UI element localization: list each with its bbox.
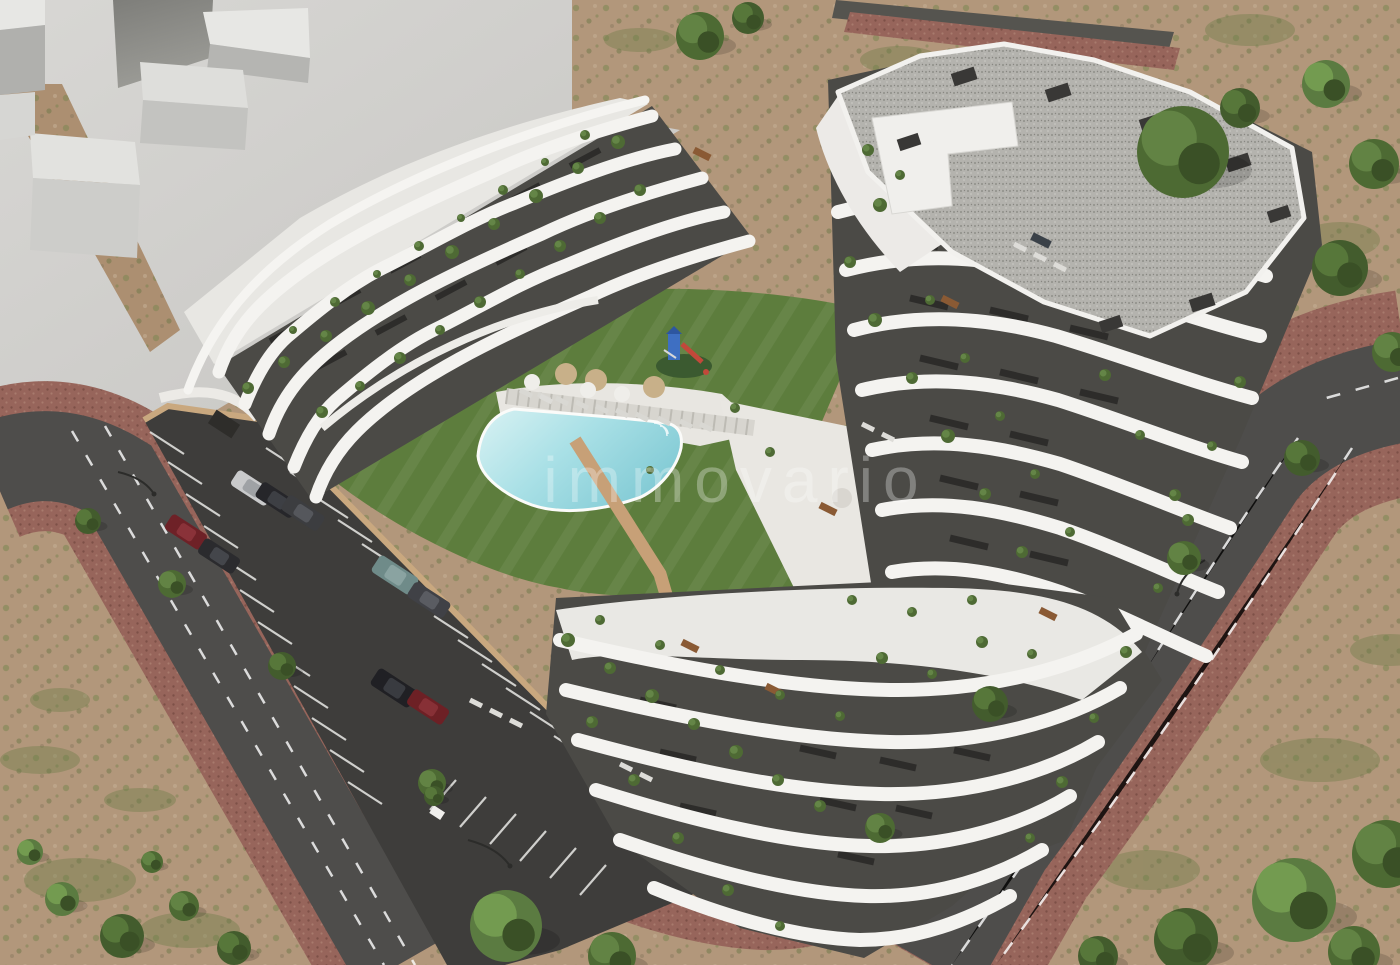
terrace-plant	[561, 633, 575, 647]
plant-highlight	[595, 213, 602, 220]
plant-highlight	[874, 199, 882, 207]
terrace-plant	[868, 313, 882, 327]
plant-highlight	[848, 596, 854, 602]
terrace-plant	[730, 403, 740, 413]
terrace-plant	[876, 652, 888, 664]
tan-umbrella	[555, 363, 577, 385]
terrace-plant	[927, 669, 937, 679]
tree-shade-side	[879, 825, 893, 839]
plant-highlight	[1017, 547, 1024, 554]
terrace-plant	[498, 185, 508, 195]
terrace-plant	[672, 832, 684, 844]
plant-highlight	[290, 327, 294, 331]
plant-highlight	[961, 354, 967, 360]
terrace-plant	[373, 270, 381, 278]
terrace-plant	[604, 662, 616, 674]
plant-highlight	[908, 608, 914, 614]
plant-highlight	[723, 885, 730, 892]
terrace-plant	[634, 184, 646, 196]
terrace-plant	[1030, 469, 1040, 479]
tree-shade-side	[171, 581, 184, 594]
plant-highlight	[1026, 834, 1032, 840]
plant-highlight	[1028, 650, 1034, 656]
plant-highlight	[1136, 431, 1142, 437]
terrace-plant	[394, 352, 406, 364]
terrace-plant	[445, 245, 459, 259]
terrace-plant	[355, 381, 365, 391]
tree-shade-side	[746, 15, 760, 29]
terrace-plant	[925, 295, 935, 305]
terrace-plant	[967, 595, 977, 605]
terrace-plant	[330, 297, 340, 307]
terrace-plant	[1025, 833, 1035, 843]
plant-highlight	[968, 596, 974, 602]
terrace-plant	[1135, 430, 1145, 440]
terrace-plant	[594, 212, 606, 224]
tree-shade-side	[183, 903, 197, 917]
terrace-plant	[529, 189, 543, 203]
plant-highlight	[530, 190, 538, 198]
plant-highlight	[1208, 442, 1214, 448]
terrace-plant	[844, 256, 856, 268]
terrace-plant	[722, 884, 734, 896]
terrace-plant	[1182, 514, 1194, 526]
terrace-plant	[873, 198, 887, 212]
terrace-plant	[941, 429, 955, 443]
tree-shade-side	[988, 700, 1004, 716]
terrace-plant	[907, 607, 917, 617]
tree-shade-side	[698, 31, 720, 53]
terrace-plant	[1153, 583, 1163, 593]
plant-highlight	[730, 746, 738, 754]
plant-highlight	[279, 357, 286, 364]
terrace-plant	[862, 144, 874, 156]
plant-highlight	[587, 717, 594, 724]
terrace-plant	[580, 130, 590, 140]
plant-highlight	[863, 145, 870, 152]
white-umbrella	[614, 386, 630, 402]
terrace-plant	[242, 382, 254, 394]
plant-highlight	[499, 186, 505, 192]
tree-shade-side	[1238, 104, 1256, 122]
plant-highlight	[458, 215, 462, 219]
plant-highlight	[1170, 490, 1177, 497]
terrace-plant	[572, 162, 584, 174]
plant-highlight	[1235, 377, 1242, 384]
watermark-text: immovario	[543, 444, 928, 516]
terrace-plant	[847, 595, 857, 605]
plant-highlight	[542, 159, 546, 163]
plant-highlight	[689, 719, 696, 726]
terrace-plant	[474, 296, 486, 308]
lamp-head	[508, 864, 513, 869]
tree-shade-side	[433, 794, 442, 803]
white-umbrella	[580, 382, 596, 398]
plant-highlight	[877, 653, 884, 660]
terrace-plant	[895, 170, 905, 180]
terrace-plant	[1169, 489, 1181, 501]
plant-highlight	[374, 271, 378, 275]
lamp-head	[152, 492, 157, 497]
terrace-plant	[775, 921, 785, 931]
plant-highlight	[815, 801, 822, 808]
render-canvas: immovario	[0, 0, 1400, 965]
tree-shade-side	[1290, 892, 1328, 930]
plant-highlight	[776, 691, 782, 697]
plant-highlight	[673, 833, 680, 840]
terrace-plant	[1027, 649, 1037, 659]
tree-shade-side	[120, 932, 140, 952]
terrace-plant	[488, 218, 500, 230]
plant-highlight	[596, 616, 602, 622]
terrace-plant	[1099, 369, 1111, 381]
tree-shade-side	[1324, 79, 1346, 101]
plant-highlight	[1100, 370, 1107, 377]
terrace-plant	[995, 411, 1005, 421]
terrace-plant	[361, 301, 375, 315]
plant-highlight	[845, 257, 852, 264]
terrace-plant	[515, 269, 525, 279]
plant-highlight	[1031, 470, 1037, 476]
plant-highlight	[321, 331, 328, 338]
plant-highlight	[475, 297, 482, 304]
plant-highlight	[436, 326, 442, 332]
plant-highlight	[516, 270, 522, 276]
tree-shade-side	[29, 849, 41, 861]
plant-highlight	[1057, 777, 1064, 784]
plant-highlight	[415, 242, 421, 248]
plant-highlight	[773, 775, 780, 782]
tree-shade-side	[232, 945, 247, 960]
terrace-plant	[320, 330, 332, 342]
plant-highlight	[489, 219, 496, 226]
terrace-plant	[976, 636, 988, 648]
plant-highlight	[896, 171, 902, 177]
plant-highlight	[635, 185, 642, 192]
tan-umbrella	[643, 376, 665, 398]
plant-highlight	[836, 712, 842, 718]
plant-highlight	[926, 296, 932, 302]
tree-shade-side	[1178, 143, 1219, 184]
terrace-plant	[729, 745, 743, 759]
plant-highlight	[562, 634, 570, 642]
plant-highlight	[907, 373, 914, 380]
terrace-plant	[1120, 646, 1132, 658]
tree-shade-side	[1300, 454, 1316, 470]
lamp-head	[1175, 592, 1180, 597]
plant-highlight	[942, 430, 950, 438]
plant-highlight	[1090, 714, 1096, 720]
aerial-render: immovario	[0, 0, 1400, 965]
tree-shade-side	[502, 919, 534, 951]
terrace-plant	[1016, 546, 1028, 558]
terrace-plant	[1089, 713, 1099, 723]
terrace-plant	[979, 488, 991, 500]
tree-shade-side	[1183, 934, 1212, 963]
terrace-plant	[316, 406, 328, 418]
terrace-plant	[435, 325, 445, 335]
plant-highlight	[605, 663, 612, 670]
plant-highlight	[1121, 647, 1128, 654]
tree-shade-side	[1182, 555, 1197, 570]
tree-shade-side	[1372, 159, 1395, 182]
terrace-plant	[1056, 776, 1068, 788]
tree-shade-side	[281, 663, 294, 676]
plant-highlight	[869, 314, 877, 322]
plant-highlight	[646, 690, 654, 698]
terrace-plant	[814, 800, 826, 812]
terrace-plant	[1234, 376, 1246, 388]
plant-highlight	[1066, 528, 1072, 534]
plant-highlight	[629, 775, 636, 782]
plant-highlight	[331, 298, 337, 304]
plant-highlight	[996, 412, 1002, 418]
terrace-plant	[960, 353, 970, 363]
tree-shade-side	[1337, 262, 1362, 287]
plant-highlight	[446, 246, 454, 254]
terrace-plant	[289, 326, 297, 334]
plant-highlight	[243, 383, 250, 390]
terrace-plant	[655, 640, 665, 650]
plant-highlight	[581, 131, 587, 137]
terrace-plant	[772, 774, 784, 786]
terrace-plant	[835, 711, 845, 721]
terrace-plant	[414, 241, 424, 251]
plant-highlight	[731, 404, 737, 410]
terrace-plant	[554, 240, 566, 252]
plant-highlight	[1154, 584, 1160, 590]
terrace-plant	[715, 665, 725, 675]
terrace-plant	[278, 356, 290, 368]
plant-highlight	[317, 407, 324, 414]
terrace-plant	[457, 214, 465, 222]
plant-highlight	[405, 275, 412, 282]
terrace-plant	[611, 135, 625, 149]
plant-highlight	[1183, 515, 1190, 522]
plant-highlight	[980, 489, 987, 496]
plant-highlight	[977, 637, 984, 644]
terrace-plant	[628, 774, 640, 786]
plant-highlight	[362, 302, 370, 310]
plant-highlight	[776, 922, 782, 928]
terrace-plant	[645, 689, 659, 703]
white-umbrella	[524, 374, 540, 390]
plant-highlight	[716, 666, 722, 672]
tree-shade-side	[87, 518, 99, 530]
tree-shade-side	[151, 860, 161, 870]
terrace-plant	[688, 718, 700, 730]
terrace-plant	[595, 615, 605, 625]
plant-highlight	[573, 163, 580, 170]
terrace-plant	[404, 274, 416, 286]
plant-highlight	[555, 241, 562, 248]
plant-highlight	[612, 136, 620, 144]
terrace-plant	[1065, 527, 1075, 537]
terrace-plant	[586, 716, 598, 728]
terrace-plant	[775, 690, 785, 700]
plant-highlight	[928, 670, 934, 676]
plant-highlight	[656, 641, 662, 647]
terrace-plant	[1207, 441, 1217, 451]
terrace-plant	[541, 158, 549, 166]
plant-highlight	[356, 382, 362, 388]
tree-shade-side	[60, 896, 75, 911]
terrace-plant	[906, 372, 918, 384]
plant-highlight	[395, 353, 402, 360]
